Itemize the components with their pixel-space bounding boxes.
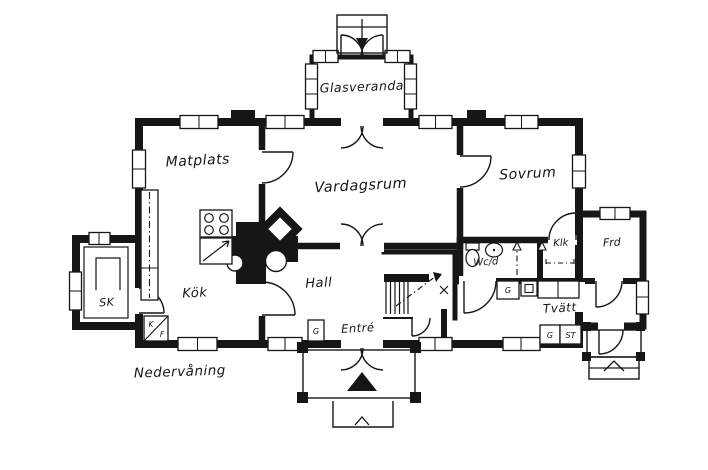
staircase xyxy=(384,272,448,314)
closet-g-bottom-label: G xyxy=(547,331,553,340)
annex-steps-chevron xyxy=(604,361,624,371)
outer-wall-right-annex xyxy=(579,214,643,326)
outer-wall-sk-annex xyxy=(76,239,139,326)
entre-porch xyxy=(297,320,421,427)
room-label-sk: SK xyxy=(99,296,115,310)
entre-steps-chevron xyxy=(355,417,369,425)
door-stair xyxy=(412,318,430,336)
stair-x-mark xyxy=(440,286,448,294)
floor-plan-image: Glasveranda Matplats Vardagsrum Sovrum K… xyxy=(0,0,708,470)
entre-steps xyxy=(333,401,393,427)
freezer-f-label: F xyxy=(160,330,165,339)
room-label-entre: Entré xyxy=(341,320,375,336)
stair-landing-bar xyxy=(384,274,429,282)
klk-shelf-dashed xyxy=(546,259,574,267)
veranda-steps xyxy=(337,15,387,53)
floor-plan-svg: Glasveranda Matplats Vardagsrum Sovrum K… xyxy=(0,0,708,470)
room-label-glasveranda: Glasveranda xyxy=(319,78,404,96)
room-label-klk: Klk xyxy=(553,238,570,250)
closet-g-entre-label: G xyxy=(313,327,319,336)
door-entre-double xyxy=(341,348,383,370)
room-label-wcd: Wc/d xyxy=(473,256,499,268)
room-label-frd: Frd xyxy=(603,235,623,249)
room-label-kok: Kök xyxy=(182,285,208,301)
room-label-sovrum: Sovrum xyxy=(499,165,557,184)
stair-direction-arrow xyxy=(433,272,442,282)
closet-g-tvatt-label: G xyxy=(505,286,511,295)
annex-porch-outline xyxy=(587,330,641,357)
annex-porch xyxy=(582,322,645,379)
kitchen-fixtures xyxy=(141,190,303,341)
entrance-marker-triangle xyxy=(347,372,377,391)
room-label-tvatt: Tvätt xyxy=(543,300,578,316)
closet-st-label: ST xyxy=(566,331,577,340)
sink-bowl-large xyxy=(266,251,287,272)
room-label-vardagsrum: Vardagsrum xyxy=(314,176,408,197)
room-label-hall: Hall xyxy=(305,275,333,291)
room-label-matplats: Matplats xyxy=(165,151,230,170)
door-vardagsrum-veranda xyxy=(341,126,383,148)
floor-label-nedervaning: Nedervåning xyxy=(134,361,227,381)
door-annex-porch xyxy=(599,330,623,354)
